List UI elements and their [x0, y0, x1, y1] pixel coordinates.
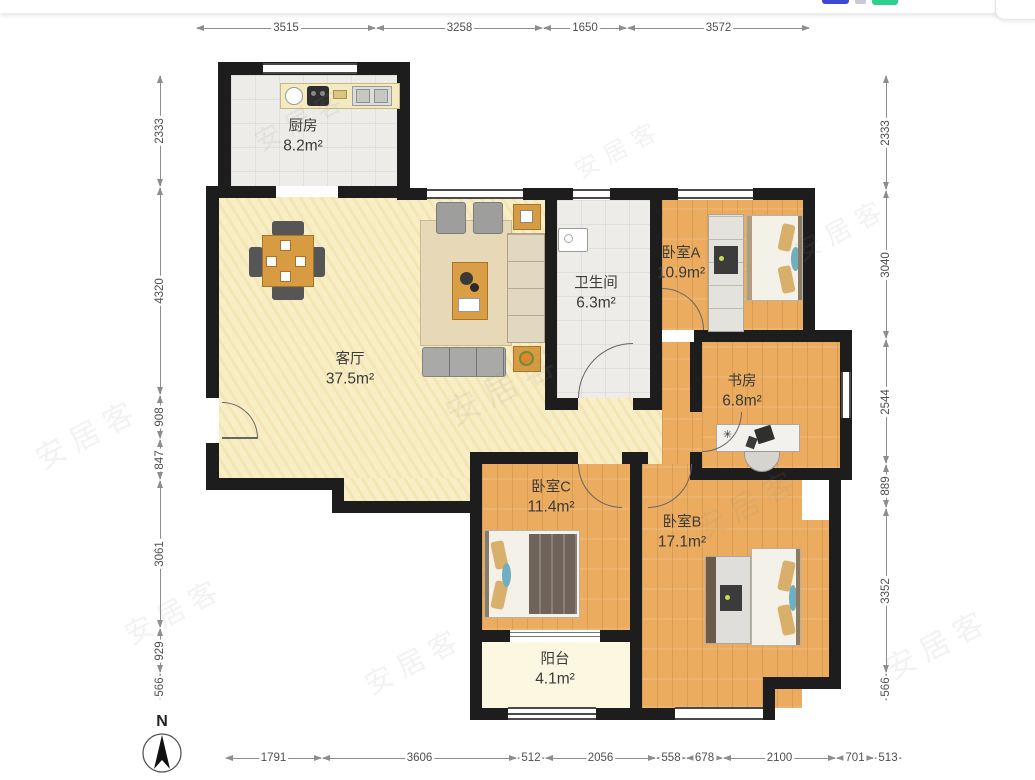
room-label-kitchen: 厨房 8.2m² — [283, 118, 323, 157]
dim-bottom-5: 678 — [686, 750, 723, 766]
sofa — [507, 233, 545, 343]
dim-top-2: 1650 — [543, 20, 627, 36]
toolbar-button-blue[interactable] — [822, 0, 849, 4]
floating-card-corner[interactable] — [995, 0, 1035, 20]
wall — [410, 188, 427, 200]
dim-top-3: 3572 — [627, 20, 810, 36]
room-label-study: 书房 6.8m² — [722, 373, 762, 412]
window — [841, 372, 851, 418]
wall — [690, 342, 702, 412]
window — [675, 707, 763, 720]
wall — [338, 186, 410, 198]
lamp-icon — [520, 210, 533, 223]
washer-dial — [564, 234, 573, 243]
armchair — [473, 202, 503, 234]
dim-right-0: 2333 — [878, 75, 894, 190]
desk-lamp-icon: ✳ — [723, 429, 735, 441]
room-label-living: 客厅 37.5m² — [326, 351, 374, 390]
dining-chair — [272, 221, 304, 236]
armchair — [436, 202, 466, 234]
wall — [218, 62, 231, 198]
tv-light-dot — [719, 256, 724, 261]
wall — [332, 501, 482, 513]
wall — [470, 708, 512, 720]
wall — [545, 200, 557, 398]
tv-light-dot — [725, 595, 730, 600]
compass-icon — [140, 731, 184, 775]
dim-right-5: 566 — [878, 673, 894, 701]
wall — [218, 186, 276, 198]
tv-icon — [720, 585, 742, 611]
blanket — [529, 534, 577, 614]
dim-right-1: 3040 — [878, 190, 894, 339]
room-name: 卧室C — [527, 479, 574, 498]
burner-dot — [311, 91, 316, 96]
plate-icon — [280, 271, 291, 282]
dim-bottom-2: 512 — [517, 750, 545, 766]
watermark: 安居客 — [26, 386, 147, 478]
dim-right-4: 3352 — [878, 508, 894, 673]
bed — [484, 530, 580, 618]
watermark: 安居客 — [567, 110, 668, 186]
bed — [751, 548, 801, 646]
room-name: 厨房 — [283, 118, 323, 137]
north-compass: N — [138, 714, 186, 775]
wall — [470, 452, 482, 720]
room-area: 11.4m² — [527, 497, 574, 517]
plate-icon — [280, 240, 291, 251]
room-name: 书房 — [722, 373, 762, 392]
toolbar-button-gray[interactable] — [855, 0, 866, 4]
room-name: 卧室B — [658, 514, 706, 533]
wall — [545, 398, 578, 410]
kitchen-plate — [285, 87, 303, 105]
balcony-window — [508, 707, 596, 720]
room-name: 客厅 — [326, 351, 374, 370]
dim-bottom-3: 2056 — [545, 750, 656, 766]
window — [263, 63, 357, 74]
wall — [470, 452, 578, 464]
sink-basin — [356, 89, 370, 103]
room-area: 4.1m² — [535, 669, 575, 689]
cup-icon — [470, 283, 479, 292]
dining-chair — [272, 285, 304, 300]
room-label-bedroom-c: 卧室C 11.4m² — [527, 479, 574, 518]
room-area: 17.1m² — [658, 532, 706, 552]
burner-dot — [320, 91, 325, 96]
north-label: N — [138, 714, 186, 730]
dim-bottom-0: 1791 — [225, 750, 322, 766]
bench — [422, 347, 506, 377]
wall — [523, 188, 573, 200]
room-area: 8.2m² — [283, 136, 323, 156]
window — [573, 189, 610, 199]
dim-left-4: 3061 — [152, 480, 168, 628]
bed-headboard — [485, 531, 489, 617]
wall — [650, 200, 662, 410]
dim-left-1: 4320 — [152, 187, 168, 395]
dim-bottom-6: 2100 — [723, 750, 836, 766]
room-name: 卧室A — [657, 245, 705, 264]
room-area: 6.8m² — [722, 391, 762, 411]
round-pillow — [502, 563, 511, 587]
wall — [610, 188, 678, 200]
wall — [600, 630, 642, 642]
watermark: 安居客 — [117, 567, 231, 653]
dim-left-0: 2333 — [152, 75, 168, 187]
room-label-bedroom-b: 卧室B 17.1m² — [658, 514, 706, 553]
floorplan-canvas: ✳ 厨房 8.2m² 客厅 37.5m² 卫生间 6.3m² 卧室A 10.9m… — [0, 0, 1035, 780]
window — [678, 189, 753, 199]
wall — [761, 708, 775, 720]
room-area: 6.3m² — [574, 293, 618, 313]
dim-right-2: 2544 — [878, 339, 894, 464]
washing-machine — [558, 228, 588, 252]
room-name: 卫生间 — [574, 275, 618, 294]
watermark: 安居客 — [357, 617, 471, 703]
room-label-balcony: 阳台 4.1m² — [535, 651, 575, 690]
bed-headboard — [796, 549, 800, 645]
wall — [633, 398, 662, 410]
dim-left-6: 566 — [152, 673, 168, 700]
plate-icon — [266, 256, 277, 267]
dim-left-2: 908 — [152, 395, 168, 439]
entry-door-leaf — [222, 437, 258, 439]
wardrobe-dark-panel — [706, 557, 716, 643]
wall — [829, 468, 841, 689]
wall — [470, 630, 510, 642]
room-area: 10.9m² — [657, 263, 705, 283]
sink-basin — [374, 89, 388, 103]
wall — [630, 452, 642, 720]
room-name: 阳台 — [535, 651, 575, 670]
wall — [206, 186, 219, 398]
plate-icon — [295, 256, 306, 267]
wall — [803, 188, 815, 342]
wall — [630, 708, 677, 720]
kitchen-item — [333, 90, 347, 99]
wall — [206, 478, 344, 490]
bed-headboard — [798, 216, 802, 300]
toolbar-button-green[interactable] — [872, 0, 898, 5]
tv-icon — [714, 246, 738, 274]
bed — [746, 215, 803, 301]
tray-icon — [458, 298, 480, 312]
room-label-bath: 卫生间 6.3m² — [574, 275, 618, 314]
dim-left-3: 847 — [152, 439, 168, 480]
stove-icon — [307, 86, 329, 106]
dim-top-1: 3258 — [376, 20, 543, 36]
watermark: 安居客 — [876, 596, 997, 688]
dining-chair — [249, 247, 263, 277]
plant-icon — [519, 351, 534, 366]
room-area: 37.5m² — [326, 369, 374, 389]
living-floor-ext — [332, 478, 482, 501]
dim-bottom-8: 513 — [874, 750, 902, 766]
dim-top-0: 3515 — [196, 20, 376, 36]
wardrobe — [705, 556, 751, 644]
balcony-threshold — [510, 632, 600, 637]
room-label-bedroom-a: 卧室A 10.9m² — [657, 245, 705, 284]
wall — [690, 468, 852, 480]
dim-bottom-1: 3606 — [322, 750, 517, 766]
window — [427, 189, 523, 199]
dim-right-3: 889 — [878, 464, 894, 508]
dim-bottom-4: 558 — [656, 750, 686, 766]
dim-bottom-7: 701 — [836, 750, 874, 766]
bed-footboard — [747, 216, 752, 300]
dim-left-5: 929 — [152, 628, 168, 673]
